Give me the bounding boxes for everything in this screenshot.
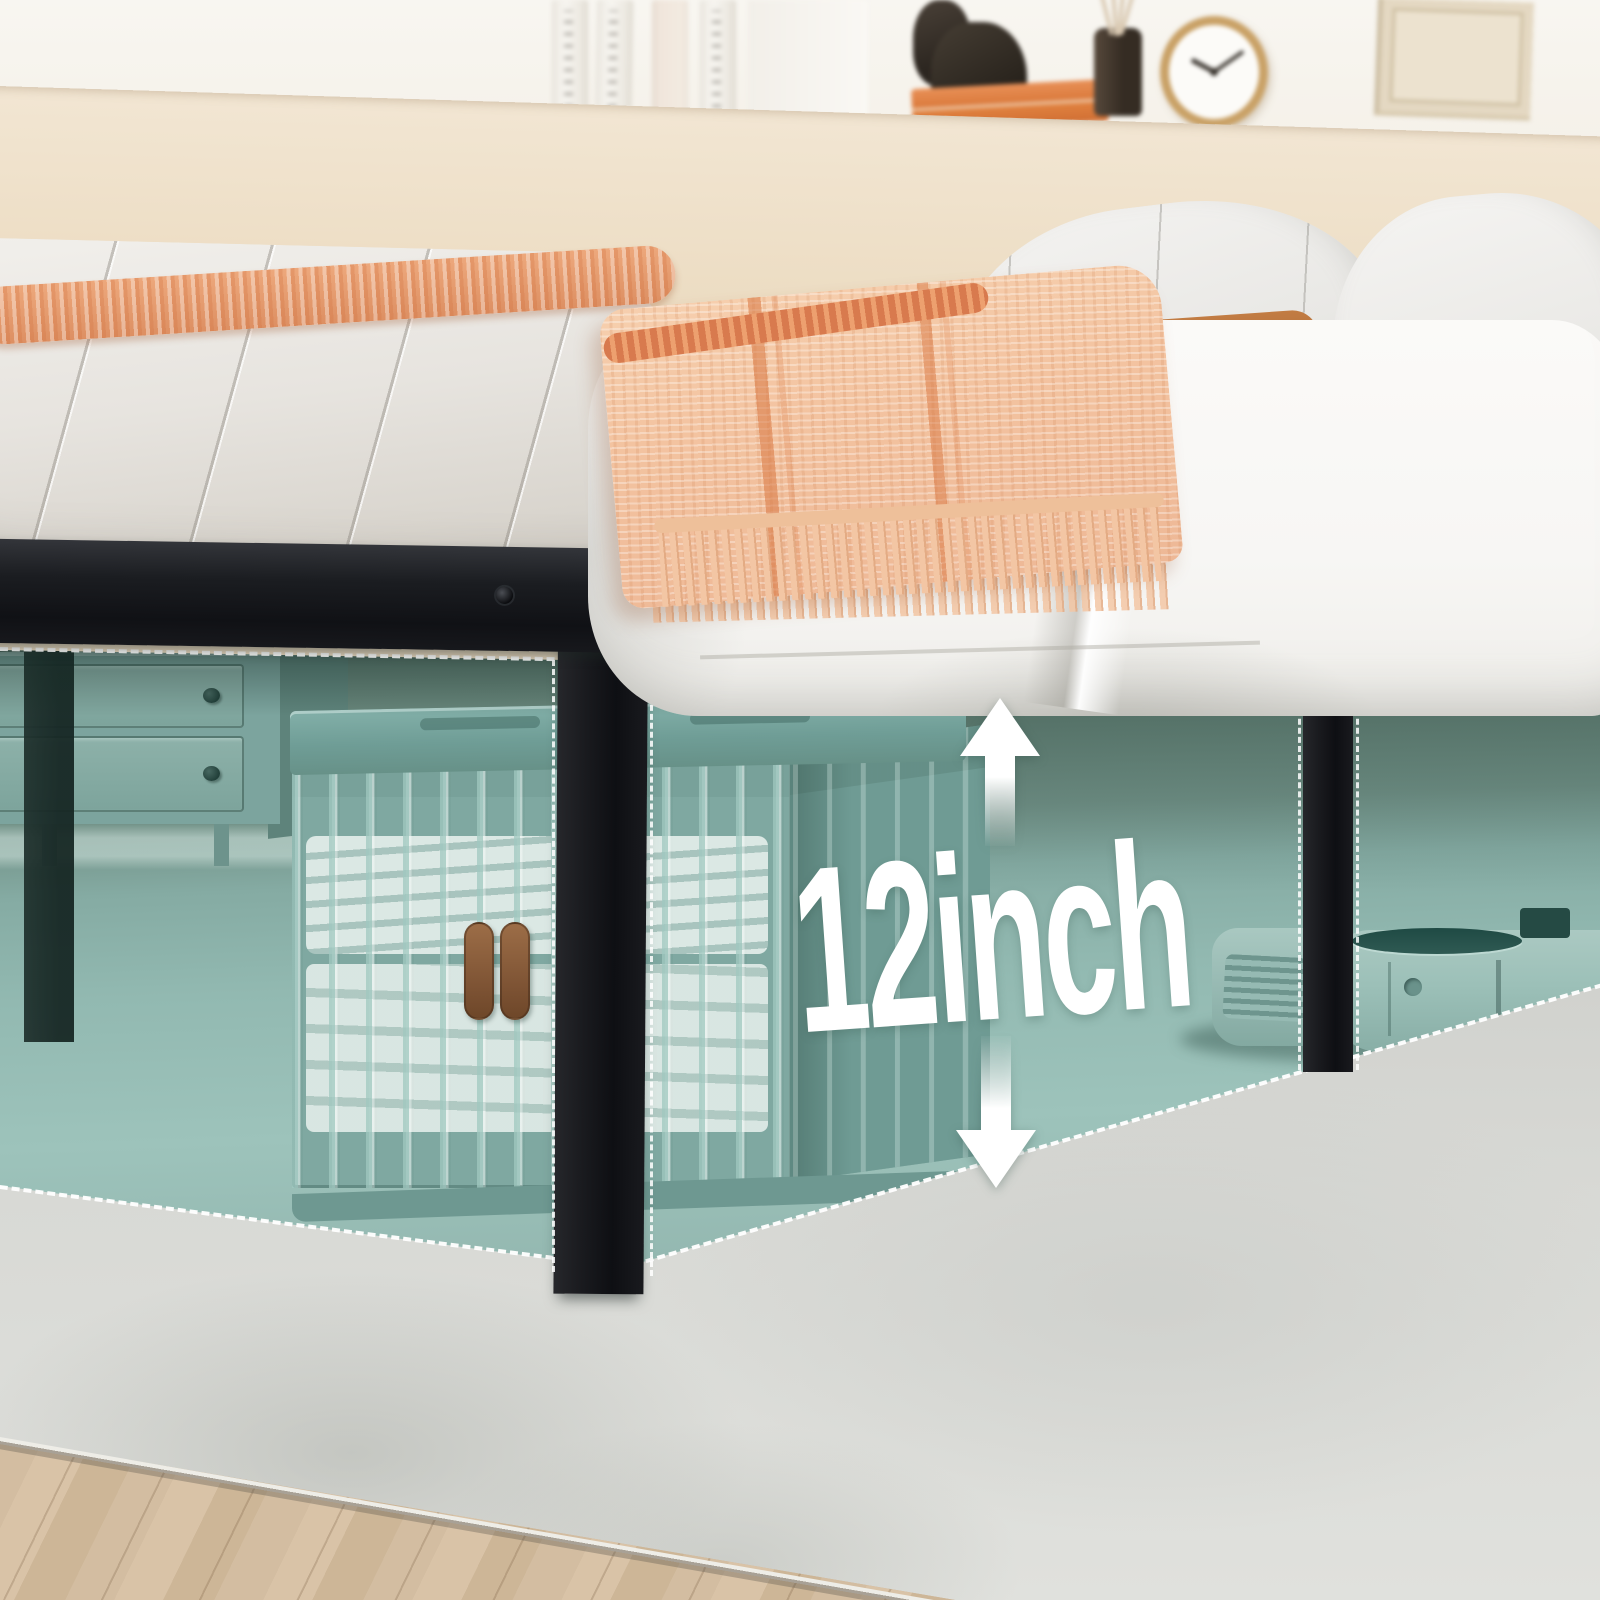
- table-clock: [1160, 16, 1268, 128]
- vacuum-sensor-bump: [1520, 908, 1570, 938]
- leg-dashed-edge: [650, 660, 653, 1276]
- crate-slats: [292, 760, 792, 1188]
- drawer-knob: [203, 766, 220, 781]
- vacuum-button: [1404, 978, 1422, 996]
- bed-frame-product-photo: 12inch: [0, 0, 1600, 1600]
- lid-ridge: [420, 716, 540, 731]
- vacuum-top-inlay: [1352, 928, 1522, 954]
- crate-handle: [464, 922, 494, 1020]
- reed-diffuser: [1094, 28, 1142, 116]
- arrow-up-head: [960, 698, 1040, 756]
- height-measurement-label: 12inch: [786, 806, 1197, 1069]
- vacuum-seam: [1388, 962, 1391, 1036]
- frame-bolt: [496, 587, 513, 604]
- crate-handle: [500, 922, 530, 1020]
- dresser-leg: [214, 824, 229, 866]
- picture-frame: [1374, 0, 1534, 121]
- arrow-down-head: [956, 1130, 1036, 1188]
- bed-frame-rail-left: [0, 539, 665, 654]
- vacuum-vents: [1222, 954, 1307, 1022]
- leg-dashed-edge: [552, 660, 555, 1272]
